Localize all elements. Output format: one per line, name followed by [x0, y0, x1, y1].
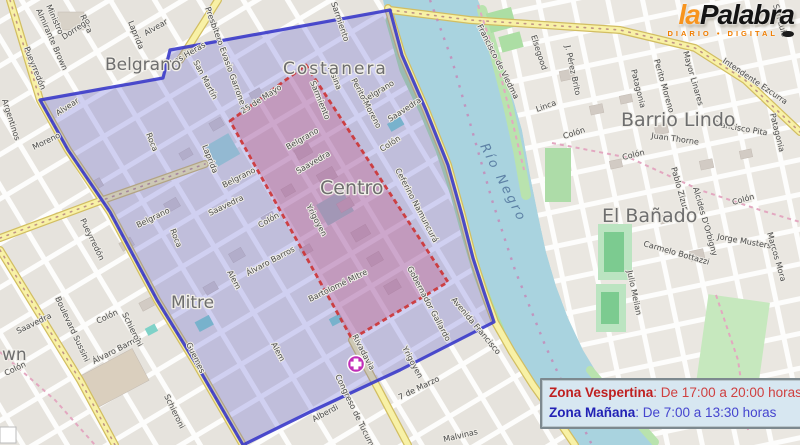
- legend-row-manana: Zona Mañana: De 7:00 a 13:30 horas: [549, 403, 799, 423]
- map-viewport[interactable]: PueyrredónPueyrredónMinistroAlmirante Br…: [0, 0, 800, 445]
- logo-palabra: Palabra: [700, 0, 794, 30]
- logo-mark: [782, 31, 794, 37]
- cut-label: [0, 427, 16, 443]
- logo-la: la: [678, 0, 699, 30]
- district-label: Belgrano: [105, 55, 181, 75]
- district-label: El Bañado: [602, 205, 697, 227]
- logo-wordmark: laPalabra: [668, 1, 794, 29]
- district-label: Mitre: [171, 293, 214, 313]
- zone-manana-name: Zona Mañana: [549, 405, 635, 420]
- schedule-legend: Zona Vespertina: De 17:00 a 20:00 horas …: [540, 378, 800, 429]
- legend-row-vespertina: Zona Vespertina: De 17:00 a 20:00 horas: [549, 383, 799, 403]
- logo-tagline: DIARIO • DIGITAL: [668, 29, 794, 38]
- lapalabra-logo: laPalabra DIARIO • DIGITAL: [668, 1, 794, 38]
- zone-vespertina-hours: : De 17:00 a 20:00 horas: [653, 385, 800, 400]
- district-label: Centro: [320, 177, 383, 199]
- district-label: Costanera: [283, 59, 388, 79]
- district-label: Barrio Lindo: [621, 109, 736, 131]
- zone-vespertina-name: Zona Vespertina: [549, 385, 653, 400]
- district-label: wn: [2, 345, 27, 365]
- zone-manana-hours: : De 7:00 a 13:30 horas: [635, 405, 776, 420]
